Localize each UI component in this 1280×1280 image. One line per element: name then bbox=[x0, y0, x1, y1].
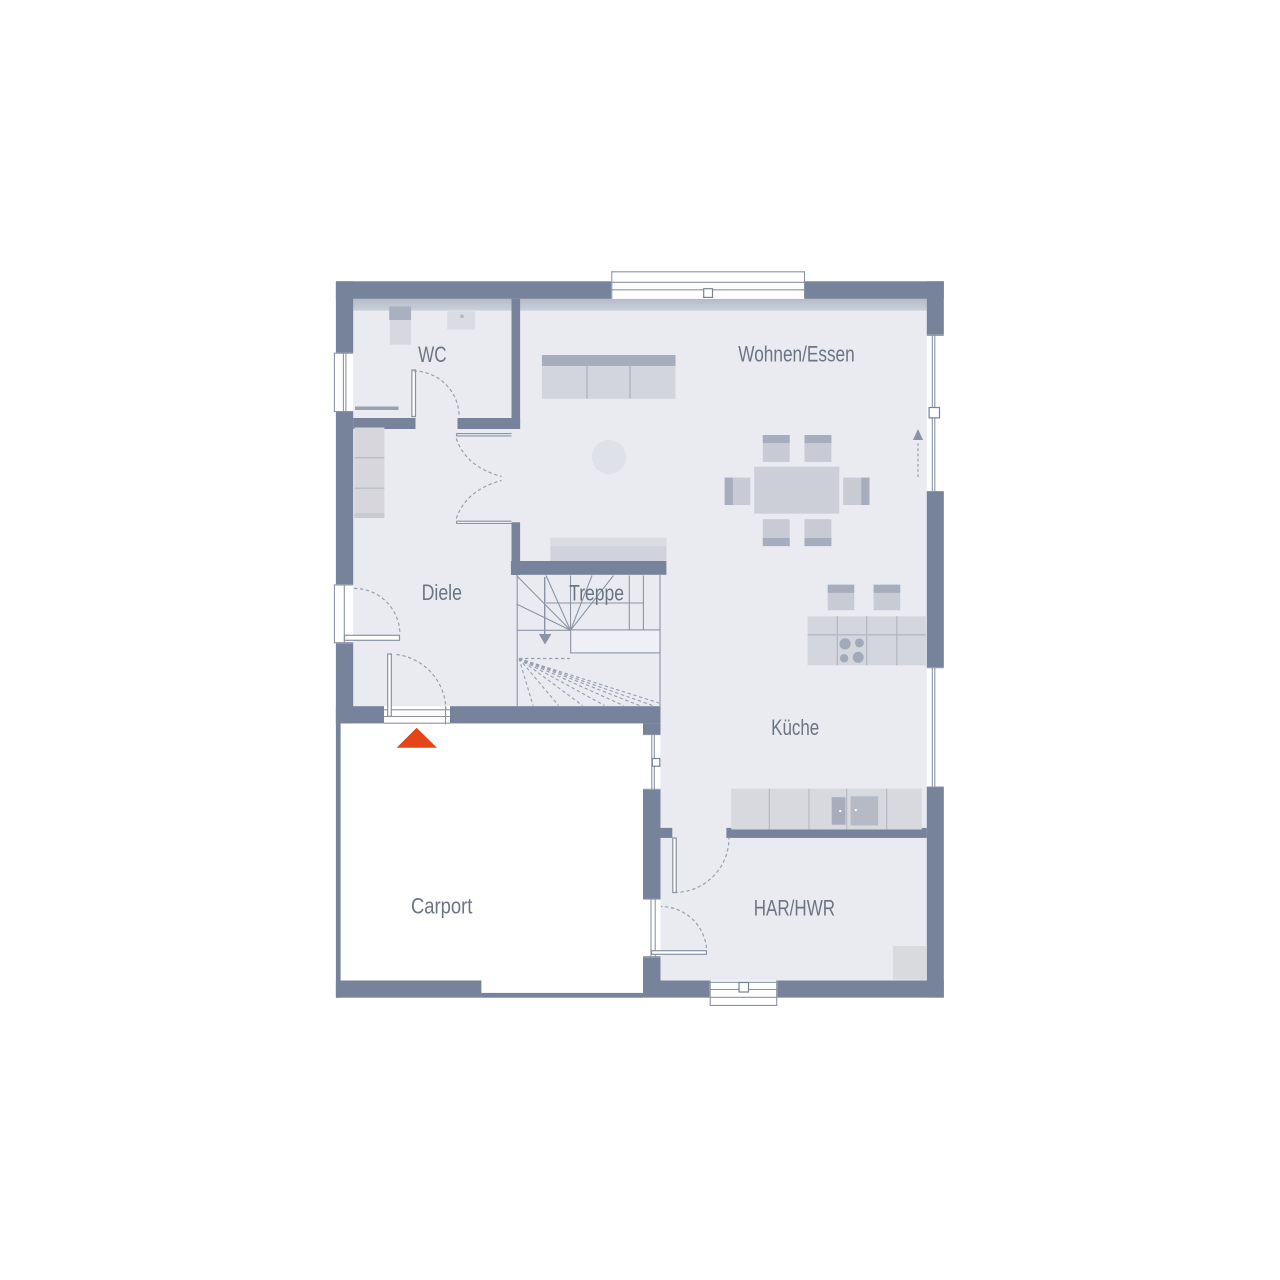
svg-text:WC: WC bbox=[418, 342, 447, 367]
svg-text:Wohnen/Essen: Wohnen/Essen bbox=[738, 341, 854, 366]
svg-text:HAR/HWR: HAR/HWR bbox=[754, 896, 835, 921]
svg-text:Carport: Carport bbox=[411, 894, 473, 919]
svg-text:Küche: Küche bbox=[771, 715, 819, 740]
svg-text:Diele: Diele bbox=[422, 580, 462, 605]
svg-text:Treppe: Treppe bbox=[569, 581, 624, 606]
